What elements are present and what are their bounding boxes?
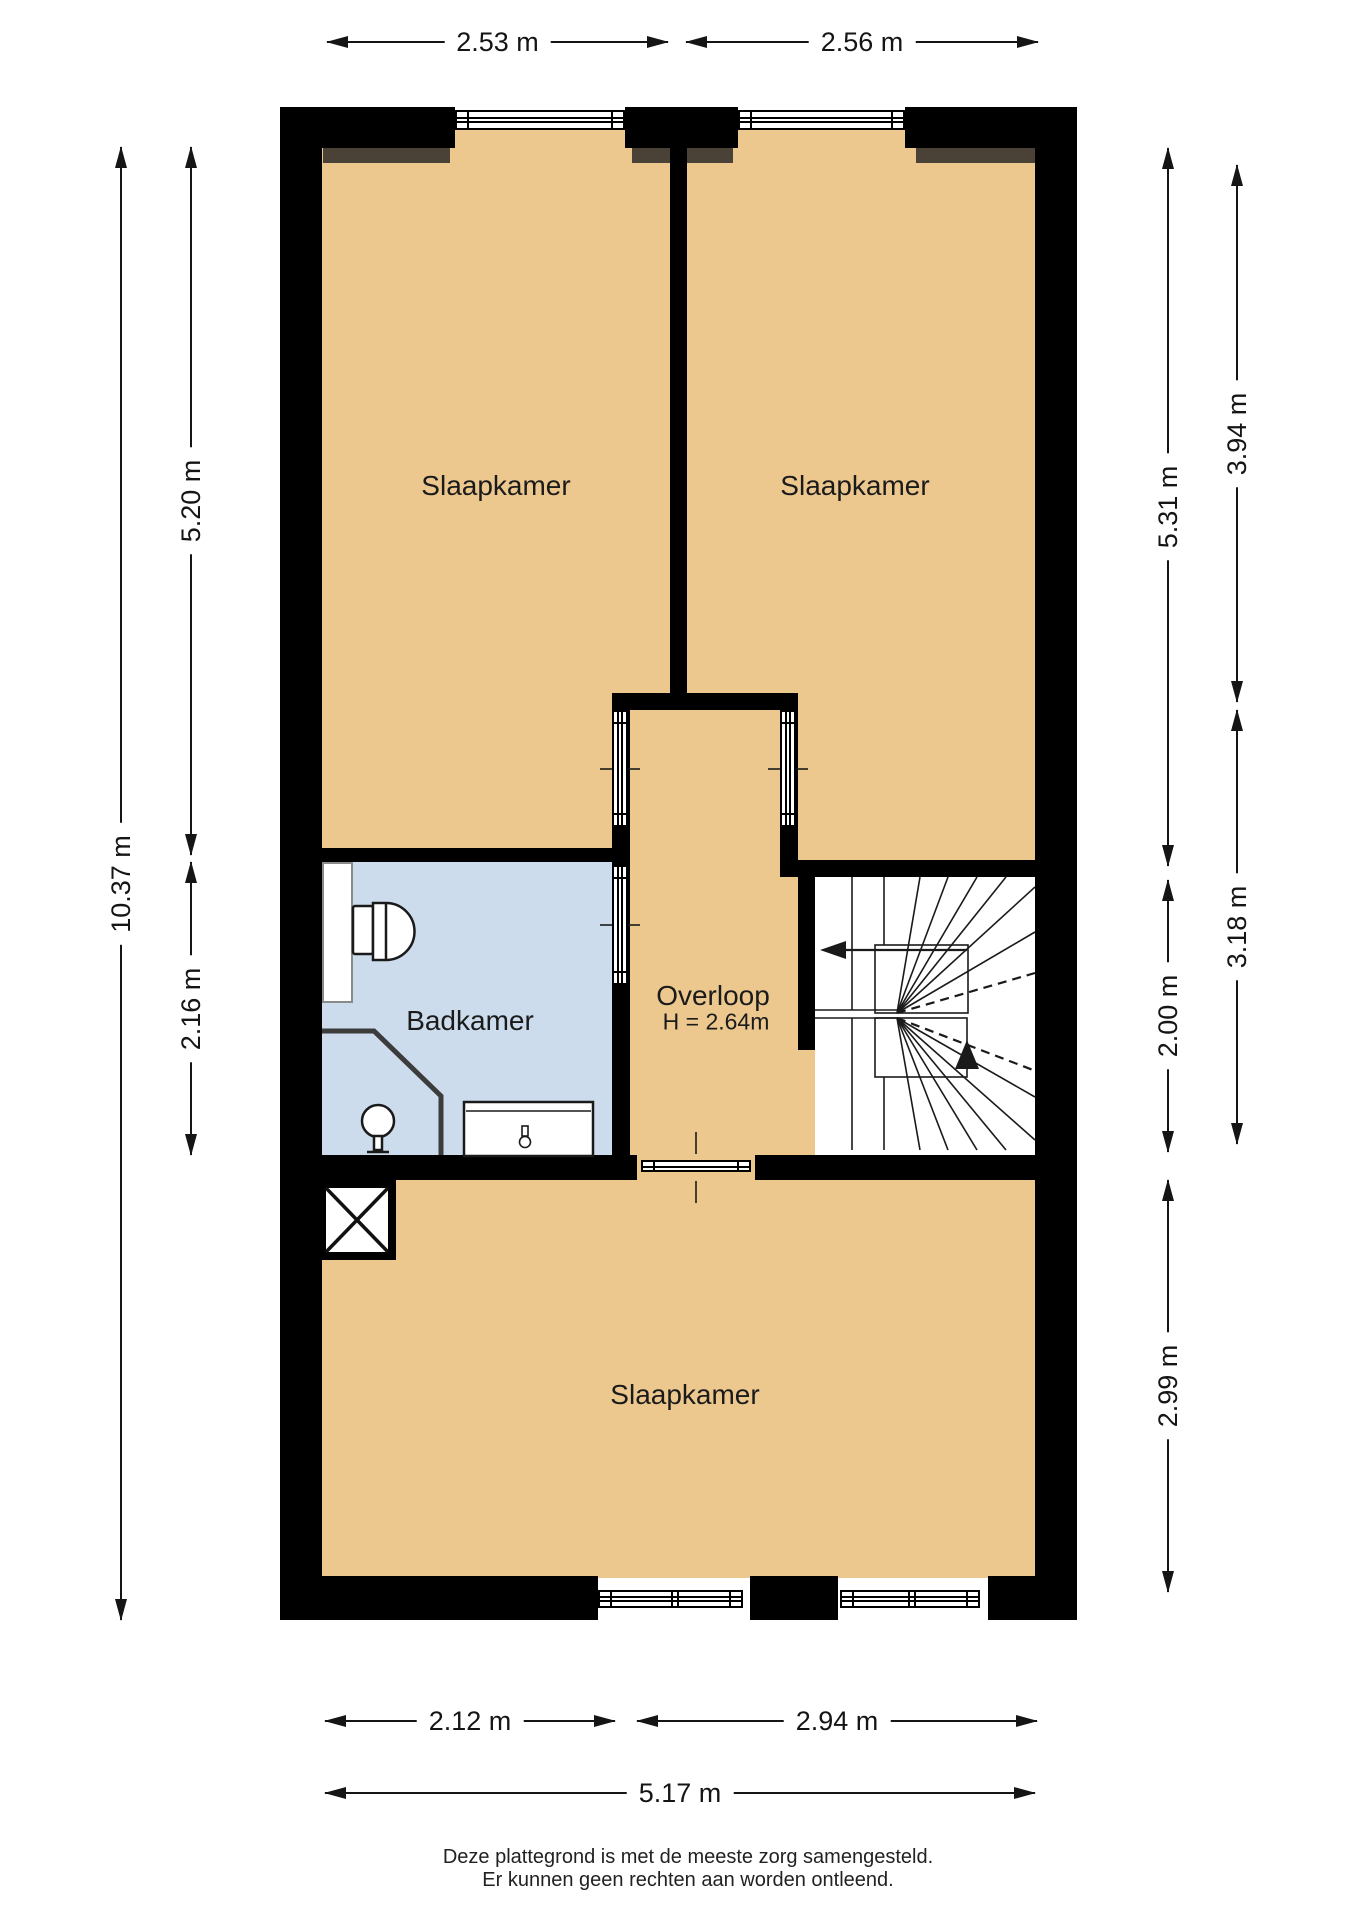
wall-bathroom-top bbox=[322, 848, 612, 862]
wall-interior-bottom bbox=[755, 1155, 1035, 1180]
dimension-label: 2.53 m bbox=[444, 28, 551, 56]
dimension-top-left: 2.53 m bbox=[327, 41, 668, 43]
dimension-right-outer-upper: 3.94 m bbox=[1236, 165, 1238, 702]
dimension-label: 5.20 m bbox=[177, 448, 205, 555]
room-label-bedroom-bottom: Slaapkamer bbox=[610, 1379, 759, 1411]
dimension-label: 2.56 m bbox=[809, 28, 916, 56]
dimension-label: 5.17 m bbox=[627, 1779, 734, 1807]
arrowhead-icon bbox=[1162, 1571, 1174, 1593]
dimension-bottom-total: 5.17 m bbox=[325, 1792, 1035, 1794]
shaft-inner bbox=[326, 1188, 388, 1252]
disclaimer-line-2: Er kunnen geen rechten aan worden ontlee… bbox=[443, 1869, 933, 1892]
dimension-label: 2.12 m bbox=[417, 1707, 524, 1735]
arrowhead-icon bbox=[185, 146, 197, 168]
room-label-bedroom-top-right: Slaapkamer bbox=[780, 470, 929, 502]
arrowhead-icon bbox=[115, 146, 127, 168]
dimension-label: 10.37 m bbox=[107, 823, 135, 945]
room-floor-landing bbox=[612, 693, 798, 1180]
arrowhead-icon bbox=[326, 36, 348, 48]
interior-window bbox=[780, 710, 796, 827]
wall-interior-bottom bbox=[282, 1155, 637, 1180]
dimension-top-right: 2.56 m bbox=[686, 41, 1038, 43]
floor-plan: Slaapkamer Slaapkamer Badkamer Overloop … bbox=[0, 0, 1358, 1920]
arrowhead-icon bbox=[1162, 1179, 1174, 1201]
dimension-left-lower: 2.16 m bbox=[190, 862, 192, 1155]
arrowhead-icon bbox=[1162, 1131, 1174, 1153]
exterior-wall-top bbox=[625, 107, 738, 148]
arrowhead-icon bbox=[1231, 709, 1243, 731]
wall-stairs-west bbox=[798, 877, 815, 1050]
wall-stairs-top bbox=[798, 860, 1035, 877]
knee-wall-strip bbox=[323, 148, 450, 163]
arrowhead-icon bbox=[1162, 845, 1174, 867]
dimension-label: 2.16 m bbox=[177, 955, 205, 1062]
dimension-right-bedroom-bottom: 2.99 m bbox=[1167, 1180, 1169, 1592]
window bbox=[840, 1590, 980, 1608]
exterior-wall-bottom bbox=[282, 1576, 598, 1620]
stairwell-floor bbox=[815, 877, 1035, 1150]
dimension-right-stairs: 2.00 m bbox=[1167, 880, 1169, 1152]
knee-wall-strip bbox=[916, 148, 1035, 163]
arrowhead-icon bbox=[685, 36, 707, 48]
room-label-bathroom: Badkamer bbox=[406, 1005, 534, 1037]
dimension-left-upper: 5.20 m bbox=[190, 147, 192, 855]
dimension-label: 3.94 m bbox=[1223, 380, 1251, 487]
arrowhead-icon bbox=[1162, 879, 1174, 901]
knee-wall-strip bbox=[632, 148, 670, 163]
window bbox=[455, 110, 625, 130]
arrowhead-icon bbox=[1014, 1787, 1036, 1799]
room-label-landing: Overloop bbox=[656, 980, 770, 1012]
window bbox=[738, 110, 905, 130]
wall-between-bedrooms bbox=[670, 148, 687, 693]
arrowhead-icon bbox=[185, 834, 197, 856]
arrowhead-icon bbox=[115, 1599, 127, 1621]
exterior-wall-bottom bbox=[988, 1576, 1077, 1620]
arrowhead-icon bbox=[1231, 681, 1243, 703]
knee-wall-strip bbox=[687, 148, 733, 163]
dimension-label: 2.00 m bbox=[1154, 963, 1182, 1070]
arrowhead-icon bbox=[1162, 147, 1174, 169]
exterior-wall-right bbox=[1035, 107, 1077, 1620]
dimension-right-outer-lower: 3.18 m bbox=[1236, 710, 1238, 1144]
dimension-label: 2.99 m bbox=[1154, 1333, 1182, 1440]
arrowhead-icon bbox=[1231, 164, 1243, 186]
exterior-wall-left bbox=[280, 107, 322, 1620]
room-label-landing-height: H = 2.64m bbox=[663, 1009, 770, 1036]
window bbox=[598, 1590, 743, 1608]
arrowhead-icon bbox=[647, 36, 669, 48]
arrowhead-icon bbox=[324, 1715, 346, 1727]
disclaimer-line-1: Deze plattegrond is met de meeste zorg s… bbox=[443, 1846, 933, 1869]
room-label-bedroom-top-left: Slaapkamer bbox=[421, 470, 570, 502]
arrowhead-icon bbox=[594, 1715, 616, 1727]
room-floor-landing-passage bbox=[798, 1050, 815, 1155]
dimension-label: 3.18 m bbox=[1223, 874, 1251, 981]
arrowhead-icon bbox=[1016, 1715, 1038, 1727]
disclaimer: Deze plattegrond is met de meeste zorg s… bbox=[443, 1846, 933, 1892]
arrowhead-icon bbox=[324, 1787, 346, 1799]
interior-window bbox=[612, 710, 628, 827]
dimension-left-total: 10.37 m bbox=[120, 147, 122, 1620]
arrowhead-icon bbox=[1017, 36, 1039, 48]
dimension-bottom-left: 2.12 m bbox=[325, 1720, 615, 1722]
door-opening bbox=[641, 1160, 751, 1172]
arrowhead-icon bbox=[636, 1715, 658, 1727]
exterior-wall-bottom bbox=[750, 1576, 838, 1620]
dimension-label: 2.94 m bbox=[784, 1707, 891, 1735]
interior-window bbox=[612, 865, 628, 985]
dimension-bottom-right: 2.94 m bbox=[637, 1720, 1037, 1722]
wall-landing-top bbox=[612, 693, 798, 710]
dimension-right-bedroom: 5.31 m bbox=[1167, 148, 1169, 866]
dimension-label: 5.31 m bbox=[1154, 454, 1182, 561]
arrowhead-icon bbox=[1231, 1123, 1243, 1145]
arrowhead-icon bbox=[185, 861, 197, 883]
arrowhead-icon bbox=[185, 1134, 197, 1156]
